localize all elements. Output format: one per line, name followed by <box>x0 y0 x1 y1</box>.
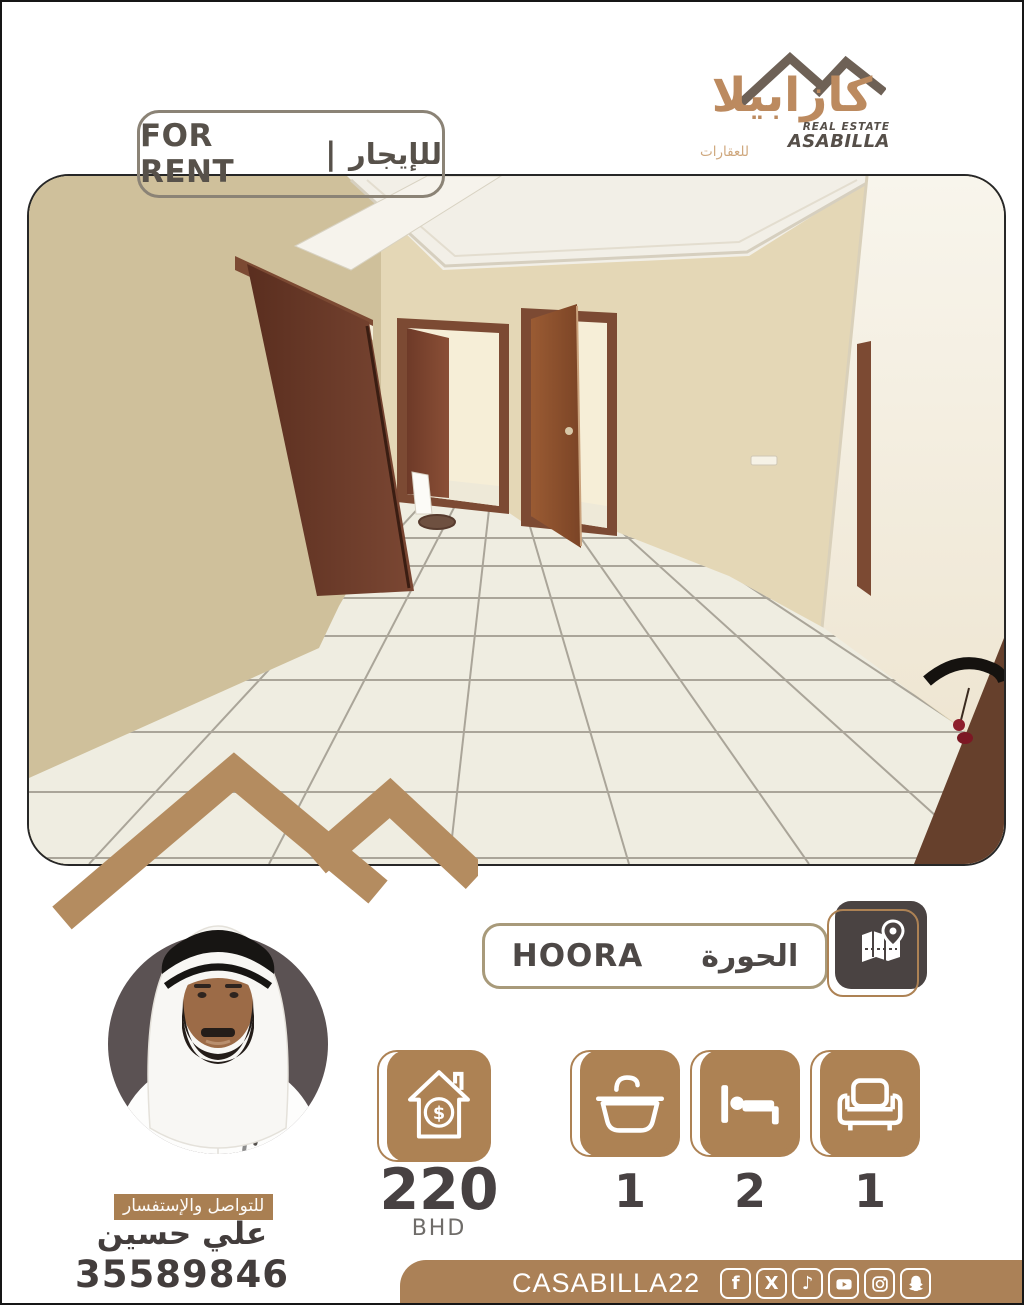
bed-icon <box>712 1070 788 1138</box>
logo-tagline: REAL ESTATE ASABILLA <box>788 122 890 152</box>
agent-phone: 35589846 <box>57 1253 307 1296</box>
agent-photo <box>98 900 338 1162</box>
tiktok-icon[interactable]: ♪ <box>792 1268 823 1299</box>
rental-poster: FOR RENT | للإيجار كازابيلا REAL ESTATE … <box>0 0 1024 1305</box>
bathrooms-tile <box>580 1050 680 1157</box>
apartment-photo-scene <box>29 176 1004 864</box>
for-rent-badge: FOR RENT | للإيجار <box>137 110 445 198</box>
living-rooms-count: 1 <box>820 1168 920 1214</box>
facebook-icon[interactable]: f <box>720 1268 751 1299</box>
living-rooms-tile <box>820 1050 920 1157</box>
x-icon[interactable]: X <box>756 1268 787 1299</box>
location-ar: الحورة <box>701 939 798 974</box>
map-tile <box>835 901 927 989</box>
location-badge: HOORA الحورة <box>482 923 828 989</box>
youtube-icon[interactable] <box>828 1268 859 1299</box>
price-currency: BHD <box>379 1216 499 1241</box>
bathrooms-count: 1 <box>580 1168 680 1214</box>
house-price-icon: $ <box>397 1061 481 1151</box>
agent-name: علي حسين <box>57 1216 307 1252</box>
logo-asabilla: ASABILLA <box>788 133 890 152</box>
social-icons: f X ♪ <box>720 1268 931 1299</box>
price-tile: $ <box>387 1050 491 1162</box>
price-amount: 220 <box>379 1162 499 1219</box>
svg-text:$: $ <box>433 1104 445 1124</box>
contact-heading: للتواصل والإستفسار <box>114 1194 273 1220</box>
for-rent-text-en: FOR RENT <box>140 118 313 190</box>
for-rent-separator: | <box>325 136 337 172</box>
map-pin-icon <box>855 919 907 971</box>
footer-bar: CASABILLA22 f X ♪ <box>400 1260 1024 1305</box>
logo-sub-arabic: للعقارات <box>700 144 749 160</box>
bedrooms-count: 2 <box>700 1168 800 1214</box>
instagram-icon[interactable] <box>864 1268 895 1299</box>
sofa-icon <box>832 1070 908 1138</box>
bathtub-icon <box>592 1070 668 1138</box>
logo-name-arabic: كازابيلا <box>694 72 890 119</box>
snapchat-icon[interactable] <box>900 1268 931 1299</box>
social-handle: CASABILLA22 <box>512 1268 700 1299</box>
casabilla-logo: كازابيلا REAL ESTATE ASABILLA للعقارات <box>694 46 890 172</box>
location-en: HOORA <box>512 938 644 974</box>
bedrooms-tile <box>700 1050 800 1157</box>
for-rent-text-ar: للإيجار <box>349 137 442 171</box>
apartment-photo <box>27 174 1006 866</box>
